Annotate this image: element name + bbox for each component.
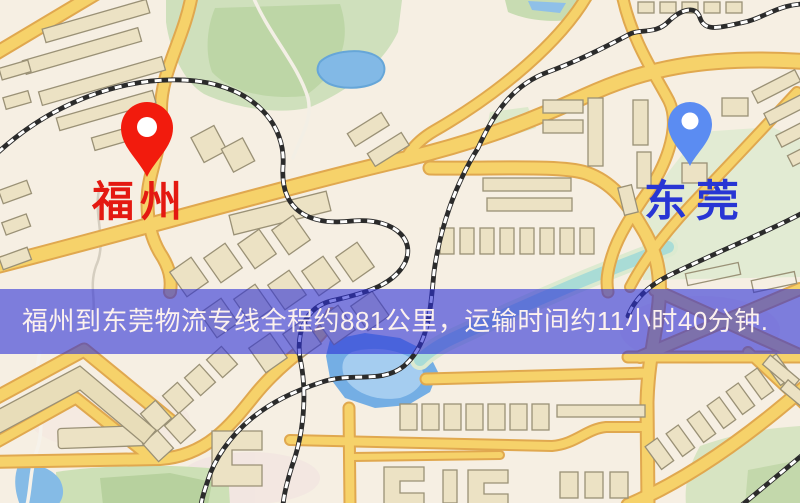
fuzhou-label: 福州 [91, 179, 188, 226]
info-banner: 福州到东莞物流专线全程约881公里，运输时间约11小时40分钟. [0, 289, 800, 354]
map-canvas[interactable]: 福州 东莞 福州到东莞物流专线全程约881公里，运输时间约11小时40分钟. [0, 0, 800, 503]
banner-text: 福州到东莞物流专线全程约881公里，运输时间约11小时40分钟. [22, 306, 769, 336]
pond [318, 51, 385, 88]
dongguan-label: 东莞 [644, 178, 748, 226]
map-screenshot: 福州 东莞 福州到东莞物流专线全程约881公里，运输时间约11小时40分钟. [0, 0, 800, 503]
